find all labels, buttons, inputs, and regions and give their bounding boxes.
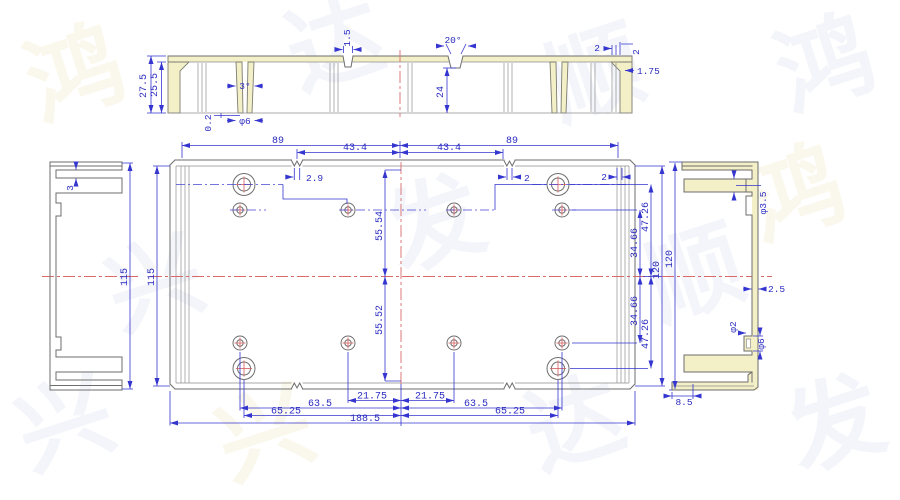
- dim-right-dia2: φ2: [728, 321, 739, 333]
- dim-notch-2: 2: [524, 173, 530, 184]
- dim-6525-left: 65.25: [271, 407, 301, 418]
- watermark: 鸿 达 兴 发 顺 鸿 达 兴 发 顺 鸿 兴: [3, 0, 897, 500]
- left-side-view: 3 115: [42, 162, 138, 390]
- dim-notch-width: 1.5: [342, 29, 353, 46]
- watermark-glyph: 发: [773, 358, 897, 492]
- dim-top-434-left: 43.4: [343, 143, 367, 154]
- dim-plan-120: 120: [652, 261, 663, 279]
- dim-4726-bot: 47.26: [641, 319, 652, 349]
- dim-3466-bot: 34.66: [630, 296, 641, 326]
- dim-section-height-inner: 25.5: [150, 73, 161, 97]
- watermark-glyph: 鸿: [763, 0, 887, 132]
- watermark-glyph: 兴: [203, 368, 327, 500]
- dim-635-right: 63.5: [464, 399, 488, 410]
- dim-3466-top: 34.66: [630, 228, 641, 258]
- dim-rib-2: 2: [601, 172, 607, 183]
- dim-6525-right: 65.25: [495, 407, 525, 418]
- mount-hole: [447, 336, 461, 350]
- dim-slot-a: 2: [594, 43, 600, 54]
- dim-plan-115: 115: [147, 268, 158, 286]
- mount-hole: [341, 336, 355, 350]
- dim-2175-left: 21.75: [357, 392, 387, 403]
- dim-boss-gap: 0.2: [203, 114, 214, 131]
- dim-notch-29: 2.9: [306, 173, 323, 184]
- dim-left-115: 115: [120, 268, 131, 286]
- dim-right-120: 120: [665, 250, 676, 268]
- dim-right-wall-25: 2.5: [768, 284, 785, 295]
- dim-right-dia6: φ6: [756, 338, 767, 350]
- cad-drawing: 鸿 达 兴 发 顺 鸿 达 兴 发 顺 鸿 兴 27.5 25.5: [0, 0, 900, 500]
- left-view-wall: [50, 162, 56, 390]
- dim-boss-diameter: φ6: [239, 116, 251, 127]
- dim-section-height-outer: 27.5: [139, 74, 150, 98]
- dim-section-depth: 24: [436, 86, 447, 98]
- dim-boss-taper-angle: 3°: [239, 81, 250, 92]
- section-left-wall: [168, 56, 189, 113]
- mount-hole: [233, 336, 247, 350]
- dim-5554: 55.54: [375, 211, 386, 241]
- screw-boss-hole: [233, 358, 255, 380]
- dim-top-89-right: 89: [506, 136, 518, 147]
- dim-left-gap-3: 3: [65, 185, 76, 191]
- dim-slot-b: 2: [631, 49, 642, 55]
- watermark-glyph: 达: [513, 358, 637, 492]
- screw-boss-hole: [547, 358, 569, 380]
- drawing-canvas: 鸿 达 兴 发 顺 鸿 达 兴 发 顺 鸿 兴 27.5 25.5: [0, 0, 900, 500]
- dim-635-left: 63.5: [308, 399, 332, 410]
- mount-hole: [555, 336, 569, 350]
- dim-right-dia35: φ3.5: [758, 191, 769, 214]
- dim-slot-depth: 1.75: [637, 66, 660, 77]
- left-view-top-bar: [50, 162, 122, 170]
- dim-4726-top: 47.26: [641, 202, 652, 232]
- dim-5552: 55.52: [375, 305, 386, 335]
- dim-overall-width: 188.5: [350, 414, 380, 425]
- dim-top-434-right: 43.4: [437, 143, 461, 154]
- watermark-glyph: 发: [373, 158, 497, 292]
- dim-2175-right: 21.75: [415, 392, 445, 403]
- watermark-glyph: 兴: [3, 358, 127, 492]
- watermark-glyph: 鸿: [13, 8, 137, 142]
- section-screw-boss: [550, 62, 557, 113]
- dim-top-89-left: 89: [272, 136, 284, 147]
- dim-notch-angle: 20°: [444, 35, 461, 46]
- dim-right-lip-85: 8.5: [675, 397, 692, 408]
